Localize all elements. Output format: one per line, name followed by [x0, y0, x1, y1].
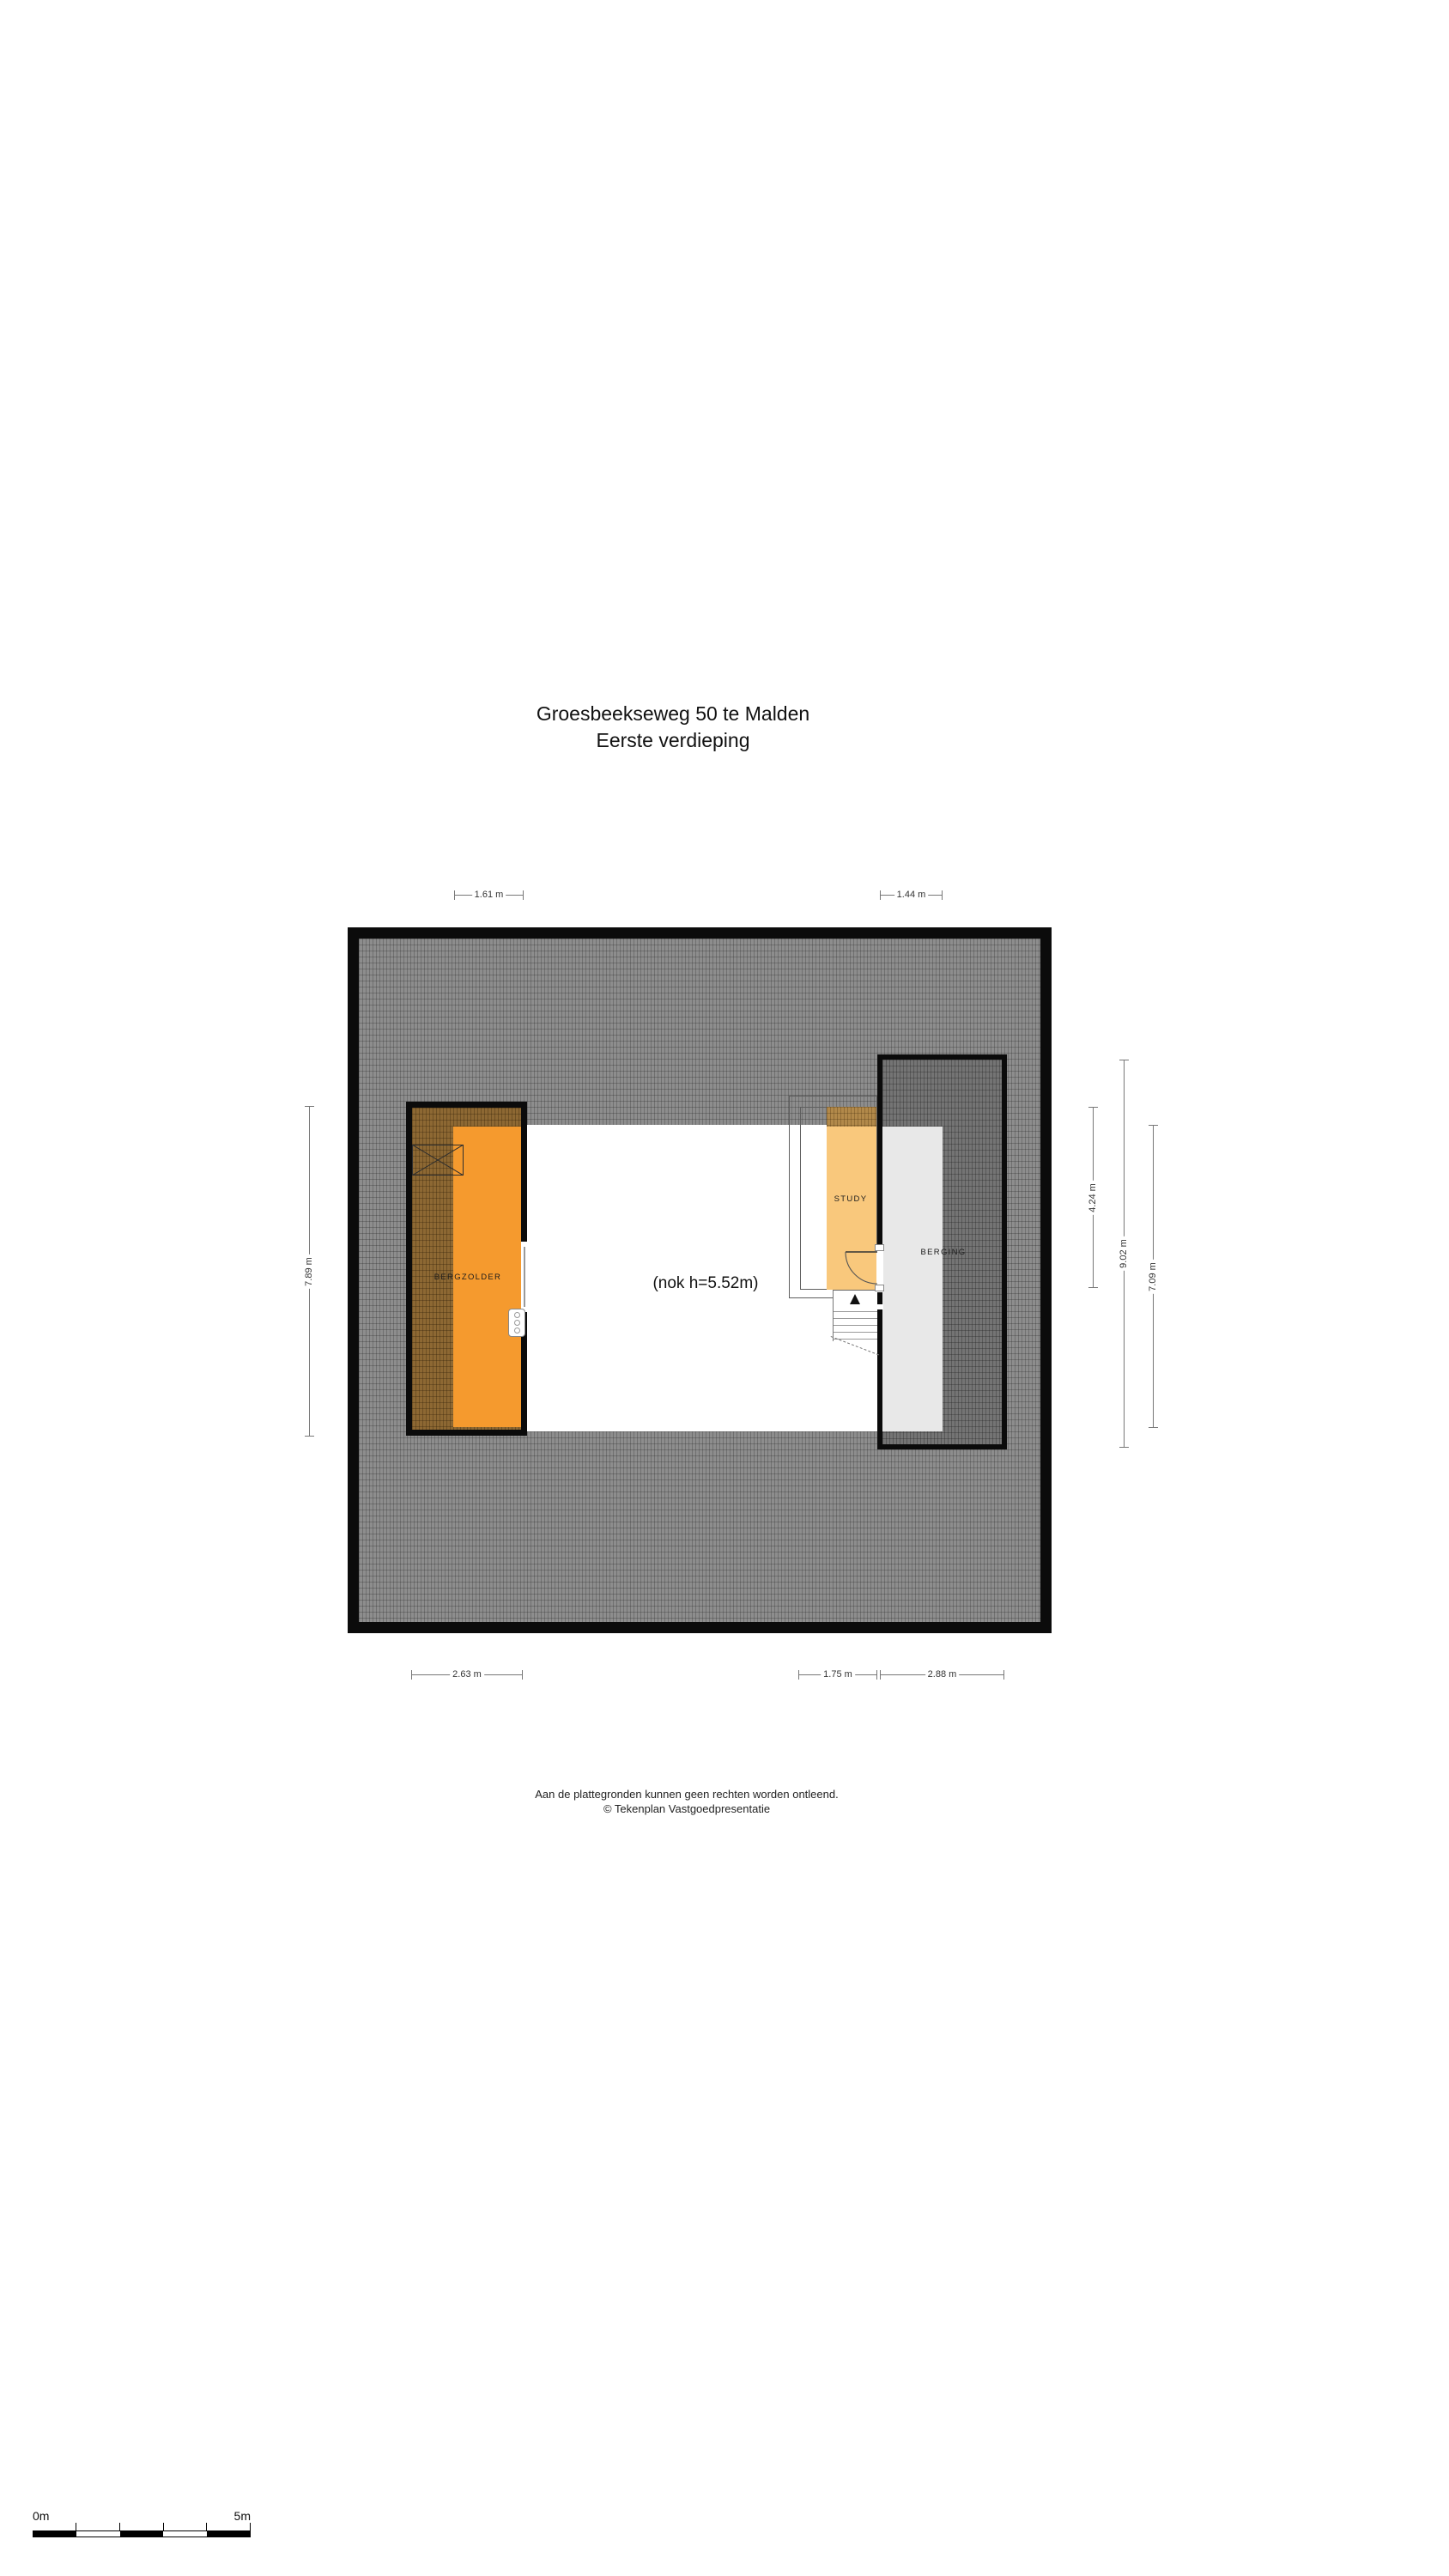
dimension-tick [1003, 1670, 1004, 1680]
dimension-tick [523, 890, 524, 900]
room-label-bergzolder: BERGZOLDER [408, 1273, 528, 1282]
room-label-study: STUDY [808, 1194, 894, 1204]
radiator-knob [514, 1312, 520, 1318]
dimension-top-left: 1.61 m [454, 890, 524, 900]
dimension-tick [880, 1670, 881, 1680]
scale-label-end: 5m [234, 2509, 251, 2523]
dimension-tick [876, 1670, 877, 1680]
dimension-label: 7.89 m [304, 1255, 314, 1289]
footer-disclaimer-line: Aan de plattegronden kunnen geen rechten… [343, 1787, 1030, 1801]
dimension-tick [798, 1670, 799, 1680]
ridge-height-annotation: (nok h=5.52m) [620, 1274, 791, 1293]
dimension-right-berging: 9.02 m [1119, 1060, 1129, 1448]
dimension-bottom-berging: 2.88 m [880, 1669, 1004, 1680]
scale-segment [163, 2531, 206, 2537]
scale-bar-segments [33, 2530, 251, 2537]
dimension-tick [1119, 1060, 1129, 1060]
dimension-tick [522, 1670, 523, 1680]
footer-copyright-line: © Tekenplan Vastgoedpresentatie [343, 1801, 1030, 1816]
stair-step [834, 1332, 877, 1333]
dimension-top-right: 1.44 m [880, 890, 943, 900]
dimension-tick [1119, 1447, 1129, 1448]
dimension-label: 2.63 m [450, 1669, 484, 1680]
dimension-tick [1088, 1107, 1098, 1108]
dimension-label: 1.61 m [472, 890, 506, 900]
room-label-berging: BERGING [883, 1248, 1003, 1257]
page-title: Groesbeekseweg 50 te Malden Eerste verdi… [330, 701, 1016, 754]
scale-tick [119, 2523, 120, 2530]
footer-disclaimer: Aan de plattegronden kunnen geen rechten… [343, 1787, 1030, 1816]
dimension-bottom-bergzolder: 2.63 m [411, 1669, 523, 1680]
scale-segment [33, 2531, 76, 2537]
dimension-label: 1.44 m [894, 890, 929, 900]
page-title-floor: Eerste verdieping [330, 727, 1016, 754]
scale-label-start: 0m [33, 2509, 49, 2523]
stair-step [834, 1325, 877, 1326]
dimension-tick [454, 890, 455, 900]
scale-tick [163, 2523, 164, 2530]
radiator-knob [514, 1327, 520, 1334]
dimension-label: 9.02 m [1119, 1236, 1129, 1271]
page-title-address: Groesbeekseweg 50 te Malden [330, 701, 1016, 727]
dimension-bottom-stairs: 1.75 m [798, 1669, 877, 1680]
floorplan-page: Groesbeekseweg 50 te Malden Eerste verdi… [0, 0, 1449, 2576]
dimension-right-study: 4.24 m [1088, 1107, 1098, 1288]
dimension-label: 2.88 m [925, 1669, 960, 1680]
dimension-tick [305, 1436, 314, 1437]
scale-segment [76, 2531, 119, 2537]
dimension-tick [411, 1670, 412, 1680]
scale-tick [76, 2523, 76, 2530]
dimension-tick [942, 890, 943, 900]
dimension-tick [1088, 1287, 1098, 1288]
stair-step [834, 1318, 877, 1319]
dimension-tick [305, 1106, 314, 1107]
dimension-label: 7.09 m [1148, 1260, 1158, 1294]
study-door-swing [807, 1228, 893, 1314]
loft-hatch-icon [412, 1145, 464, 1176]
study-roof-strip [827, 1107, 876, 1127]
radiator-icon [508, 1309, 525, 1337]
scale-bar: 0m 5m [33, 2509, 251, 2540]
scale-tick [206, 2523, 207, 2530]
scale-tick [250, 2523, 251, 2530]
dimension-right-interior: 7.09 m [1148, 1125, 1158, 1428]
dimension-tick [1149, 1125, 1158, 1126]
scale-segment [120, 2531, 163, 2537]
dimension-left: 7.89 m [304, 1106, 314, 1437]
dimension-label: 1.75 m [821, 1669, 855, 1680]
radiator-knob [514, 1320, 520, 1326]
dimension-tick [1149, 1427, 1158, 1428]
scale-segment [207, 2531, 250, 2537]
dimension-tick [880, 890, 881, 900]
dimension-label: 4.24 m [1088, 1181, 1098, 1215]
